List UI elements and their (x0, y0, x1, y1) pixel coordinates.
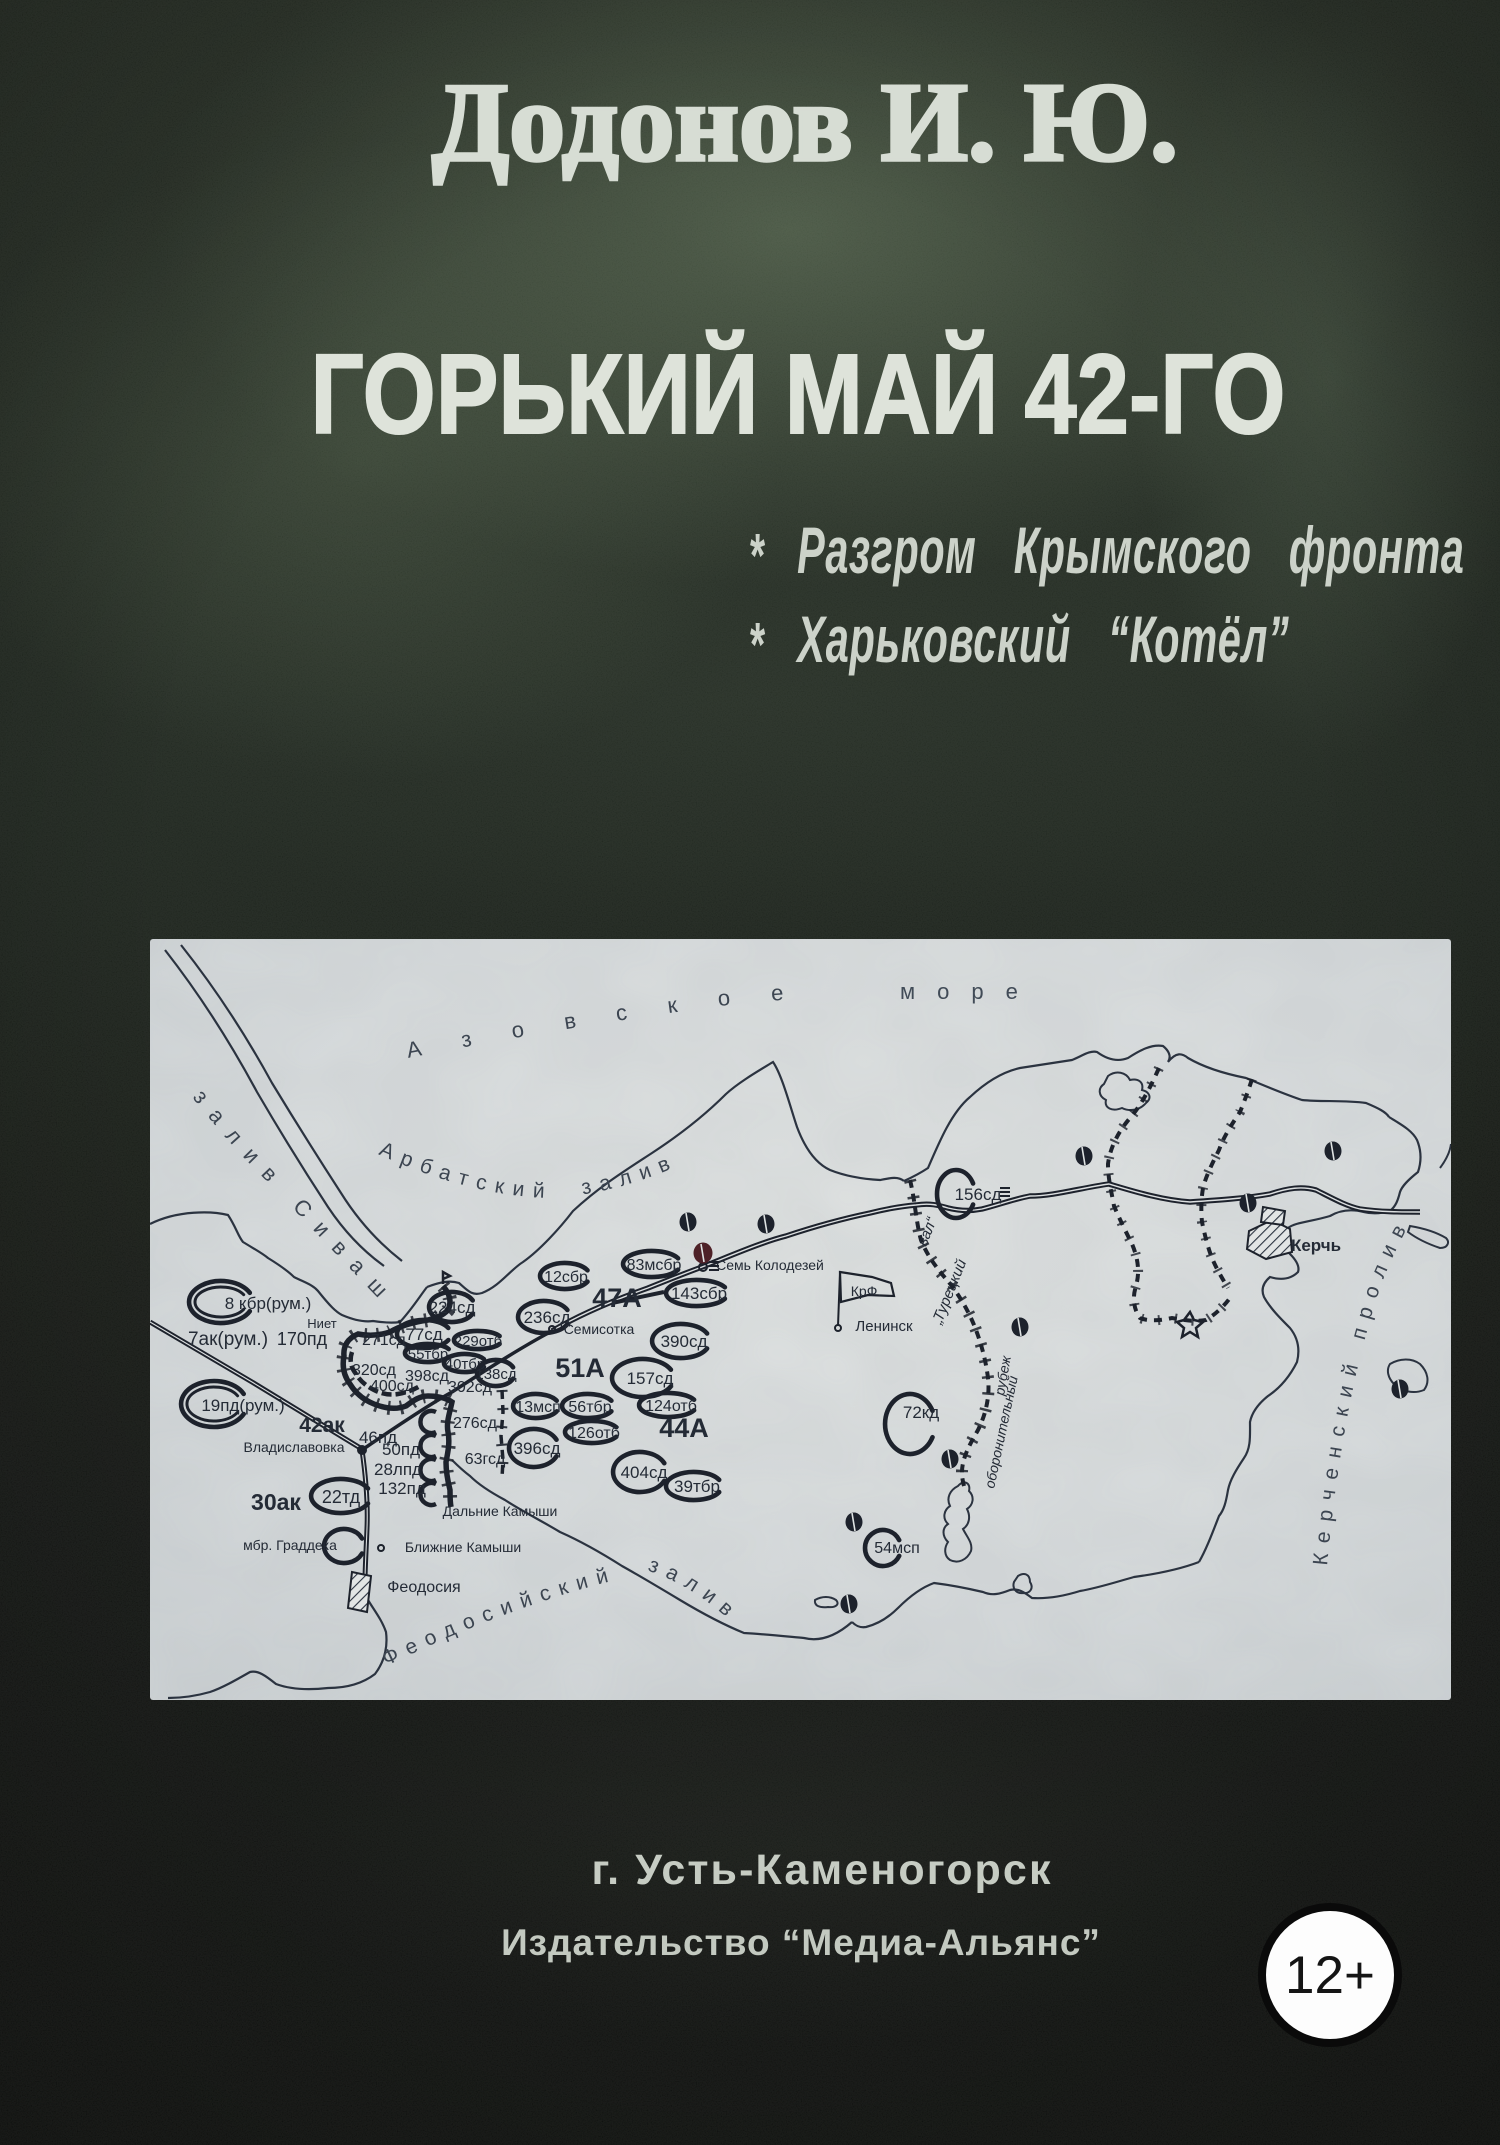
svg-text:44А: 44А (659, 1413, 709, 1443)
svg-text:72кд: 72кд (903, 1403, 939, 1422)
svg-text:390сд: 390сд (661, 1332, 708, 1351)
svg-text:мбр. Граддека: мбр. Граддека (243, 1537, 337, 1553)
svg-text:Дальние Камыши: Дальние Камыши (443, 1503, 558, 1519)
svg-text:54мсп: 54мсп (874, 1540, 919, 1557)
svg-text:Ниет: Ниет (307, 1316, 336, 1331)
svg-text:19пд(рум.): 19пд(рум.) (201, 1396, 284, 1415)
svg-text:156сд: 156сд (955, 1185, 1002, 1204)
svg-text:Ленинск: Ленинск (855, 1318, 913, 1335)
svg-text:320сд: 320сд (352, 1362, 397, 1379)
svg-text:400сд: 400сд (370, 1378, 415, 1395)
svg-text:Семисотка: Семисотка (564, 1321, 635, 1337)
svg-text:276сд: 276сд (453, 1415, 498, 1432)
svg-text:143сбр: 143сбр (671, 1284, 727, 1303)
svg-text:170пд: 170пд (277, 1329, 328, 1349)
svg-text:Керчь: Керчь (1291, 1236, 1341, 1255)
svg-text:56тбр: 56тбр (568, 1399, 611, 1416)
svg-text:47А: 47А (592, 1283, 642, 1313)
svg-text:229отб: 229отб (454, 1333, 503, 1350)
svg-text:Семь Колодезей: Семь Колодезей (716, 1257, 824, 1273)
svg-text:30ак: 30ак (251, 1489, 301, 1515)
svg-text:83мсбр: 83мсбр (627, 1257, 682, 1274)
svg-text:28лпд: 28лпд (374, 1460, 422, 1479)
svg-text:224сд: 224сд (429, 1298, 476, 1317)
svg-text:13мсп: 13мсп (515, 1399, 560, 1416)
svg-text:Феодосия: Феодосия (387, 1579, 460, 1596)
svg-text:Владиславовка: Владиславовка (244, 1439, 345, 1455)
svg-text:42ак: 42ак (299, 1414, 345, 1437)
svg-text:8 кбр(рум.): 8 кбр(рум.) (225, 1294, 312, 1313)
svg-text:157сд: 157сд (627, 1369, 674, 1388)
svg-text:море: море (900, 979, 1040, 1004)
svg-text:7ак(рум.): 7ак(рум.) (188, 1329, 268, 1350)
svg-text:404сд: 404сд (621, 1463, 668, 1482)
svg-text:22тд: 22тд (322, 1487, 361, 1507)
svg-text:396сд: 396сд (514, 1439, 561, 1458)
svg-text:50пд: 50пд (382, 1440, 420, 1459)
svg-text:302сд: 302сд (448, 1379, 493, 1396)
svg-text:51А: 51А (555, 1353, 605, 1383)
svg-text:КрФ.: КрФ. (851, 1283, 881, 1299)
svg-text:39тбр: 39тбр (674, 1477, 720, 1496)
svg-text:12сбр: 12сбр (544, 1269, 588, 1286)
svg-text:126отб: 126отб (568, 1425, 620, 1442)
svg-text:Ближние Камыши: Ближние Камыши (405, 1539, 521, 1555)
svg-text:77сд: 77сд (405, 1325, 442, 1344)
svg-text:132пд: 132пд (378, 1479, 426, 1498)
svg-text:271сд: 271сд (362, 1332, 407, 1349)
svg-text:63гсд: 63гсд (465, 1451, 506, 1468)
